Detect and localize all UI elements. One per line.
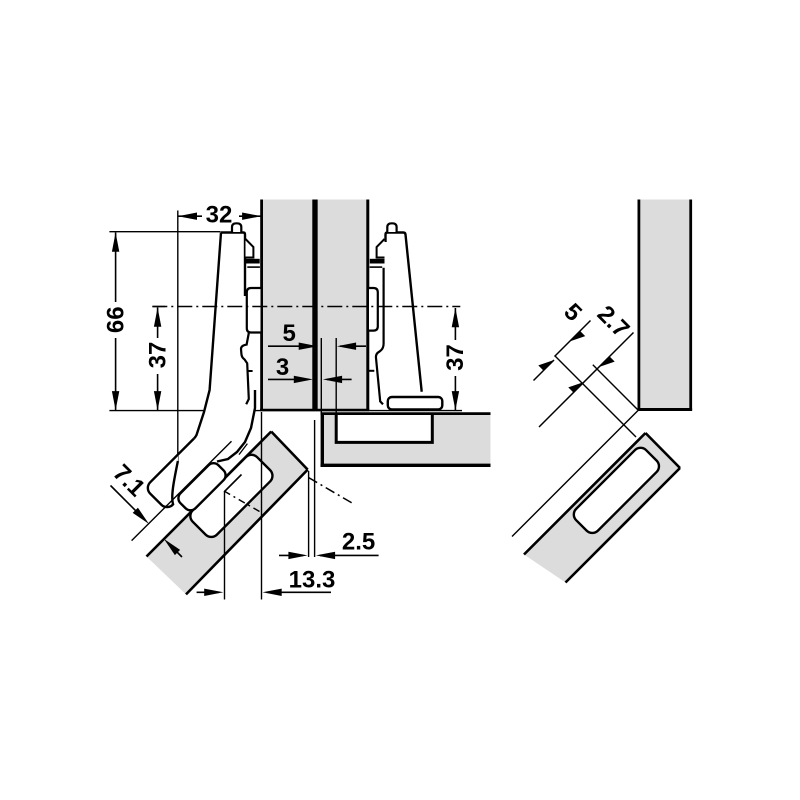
svg-text:37: 37 <box>144 342 171 369</box>
svg-text:3: 3 <box>276 354 289 381</box>
svg-text:2.5: 2.5 <box>342 528 375 555</box>
svg-text:13.3: 13.3 <box>289 566 336 593</box>
svg-text:37: 37 <box>442 344 469 371</box>
svg-text:5: 5 <box>283 320 296 347</box>
svg-text:32: 32 <box>206 202 233 229</box>
svg-text:66: 66 <box>102 306 129 333</box>
